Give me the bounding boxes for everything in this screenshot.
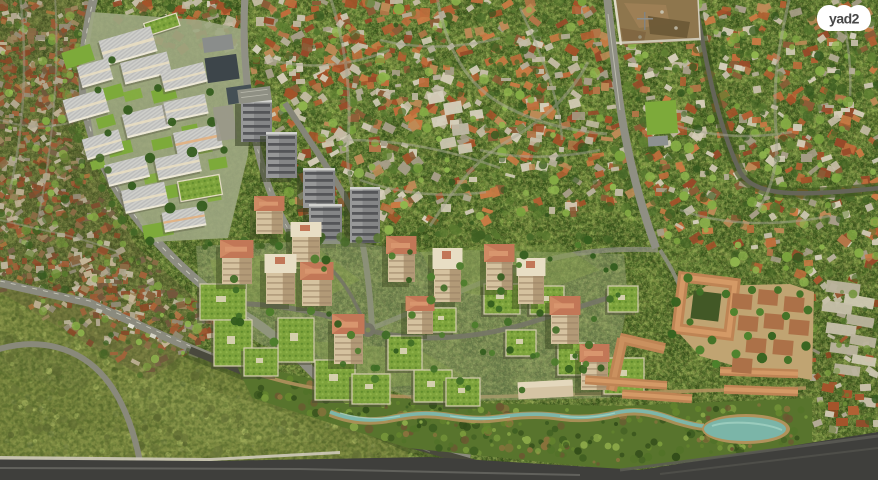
svg-text:yad2: yad2	[829, 11, 860, 27]
